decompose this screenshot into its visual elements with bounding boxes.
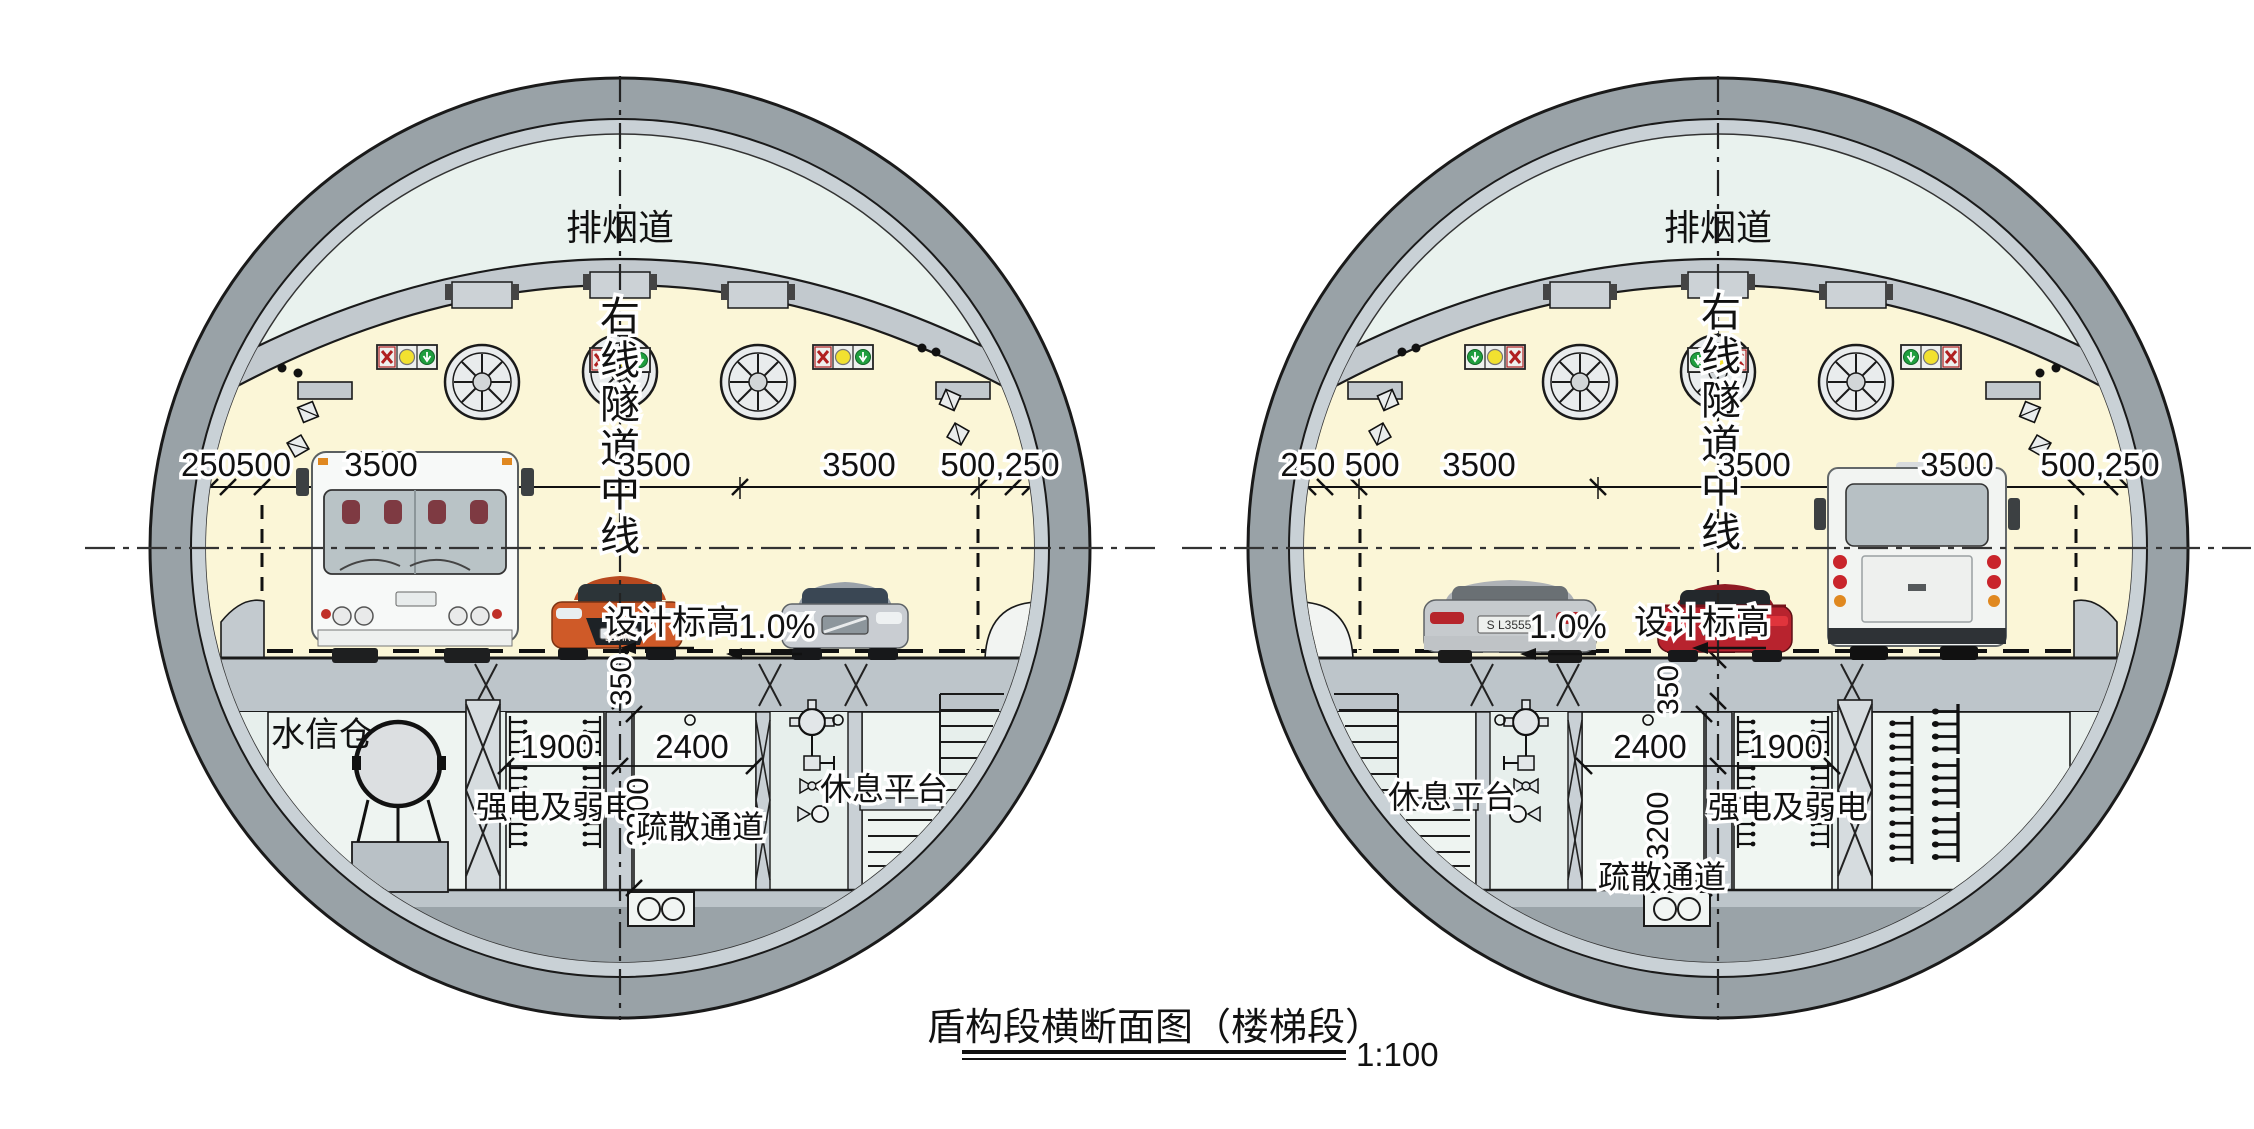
evac-passage-label: 疏散通道	[636, 809, 764, 845]
drawing-title: 盾构段横断面图（楼梯段）	[927, 1007, 1383, 1049]
design-elevation-label: 设计标高	[1634, 604, 1770, 642]
smoke-duct-label: 排烟道	[566, 207, 674, 248]
dim-lane1: 3500	[1442, 446, 1515, 483]
dim-lane1: 3500	[344, 446, 417, 483]
title-block: 盾构段横断面图（楼梯段） 1:100	[927, 1007, 1439, 1073]
dim-350: 350	[605, 656, 638, 706]
svg-text:隧: 隧	[600, 383, 640, 427]
svg-text:线: 线	[1701, 335, 1741, 379]
dim-left-edge: 250 500	[1280, 446, 1399, 483]
dim-left-edge: 250500	[181, 446, 291, 483]
dim-2400: 2400	[1613, 728, 1686, 765]
evac-passage-label: 疏散通道	[1598, 859, 1726, 895]
svg-text:右: 右	[600, 295, 640, 339]
dim-350: 350	[1652, 665, 1685, 715]
title-underline	[962, 1050, 1346, 1054]
slope-label: 1.0%	[738, 608, 816, 646]
dim-right-edge: 500,250	[940, 446, 1059, 483]
dim-lane2: 3500	[1717, 446, 1790, 483]
dim-lane3: 3500	[1920, 446, 1993, 483]
water-room-label: 水信仓	[271, 716, 373, 754]
rest-platform-label: 休息平台	[1388, 779, 1516, 815]
dim-right-edge: 500,250	[2040, 446, 2159, 483]
drawing-scale: 1:100	[1356, 1036, 1439, 1073]
svg-text:右: 右	[1701, 291, 1741, 335]
tunnel-left: 排烟道 右 线 隧 道 中 线 250500 3500 3500 3500 50…	[85, 76, 1158, 1030]
tunnel-centerline-label: 右 线 隧 道 中 线	[600, 295, 640, 559]
dim-lane2: 3500	[617, 446, 690, 483]
svg-text:线: 线	[600, 339, 640, 383]
levin-badge: LEVIN	[605, 633, 631, 643]
svg-text:线: 线	[600, 515, 640, 559]
slope-label: 1.0%	[1529, 608, 1607, 646]
svg-text:隧: 隧	[1701, 379, 1741, 423]
power-room-label: 强电及弱电	[1708, 789, 1868, 825]
smoke-duct-label: 排烟道	[1664, 207, 1772, 248]
rest-platform-label: 休息平台	[820, 771, 948, 807]
title-underline-thin	[962, 1058, 1346, 1060]
drawing-sheet: 排烟道 右 线 隧 道 中 线 250500 3500 3500 3500 50…	[0, 0, 2254, 1129]
mercedes-plate: S L3555	[1487, 618, 1532, 632]
dim-2400: 2400	[655, 728, 728, 765]
tunnel-centerline-label: 右 线 隧 道 中 线	[1701, 291, 1741, 555]
tunnel-right: 排烟道 右 线 隧 道 中 线 250 500 3500 3500 3500 5…	[1182, 76, 2251, 1030]
tunnel-cross-section-drawing: 排烟道 右 线 隧 道 中 线 250500 3500 3500 3500 50…	[0, 0, 2254, 1129]
dim-1900: 1900	[1749, 728, 1822, 765]
dim-3200: 3200	[1640, 792, 1675, 861]
dim-lane3: 3500	[822, 446, 895, 483]
svg-text:线: 线	[1701, 511, 1741, 555]
dim-1900: 1900	[520, 728, 593, 765]
power-room-label: 强电及弱电	[476, 789, 636, 825]
